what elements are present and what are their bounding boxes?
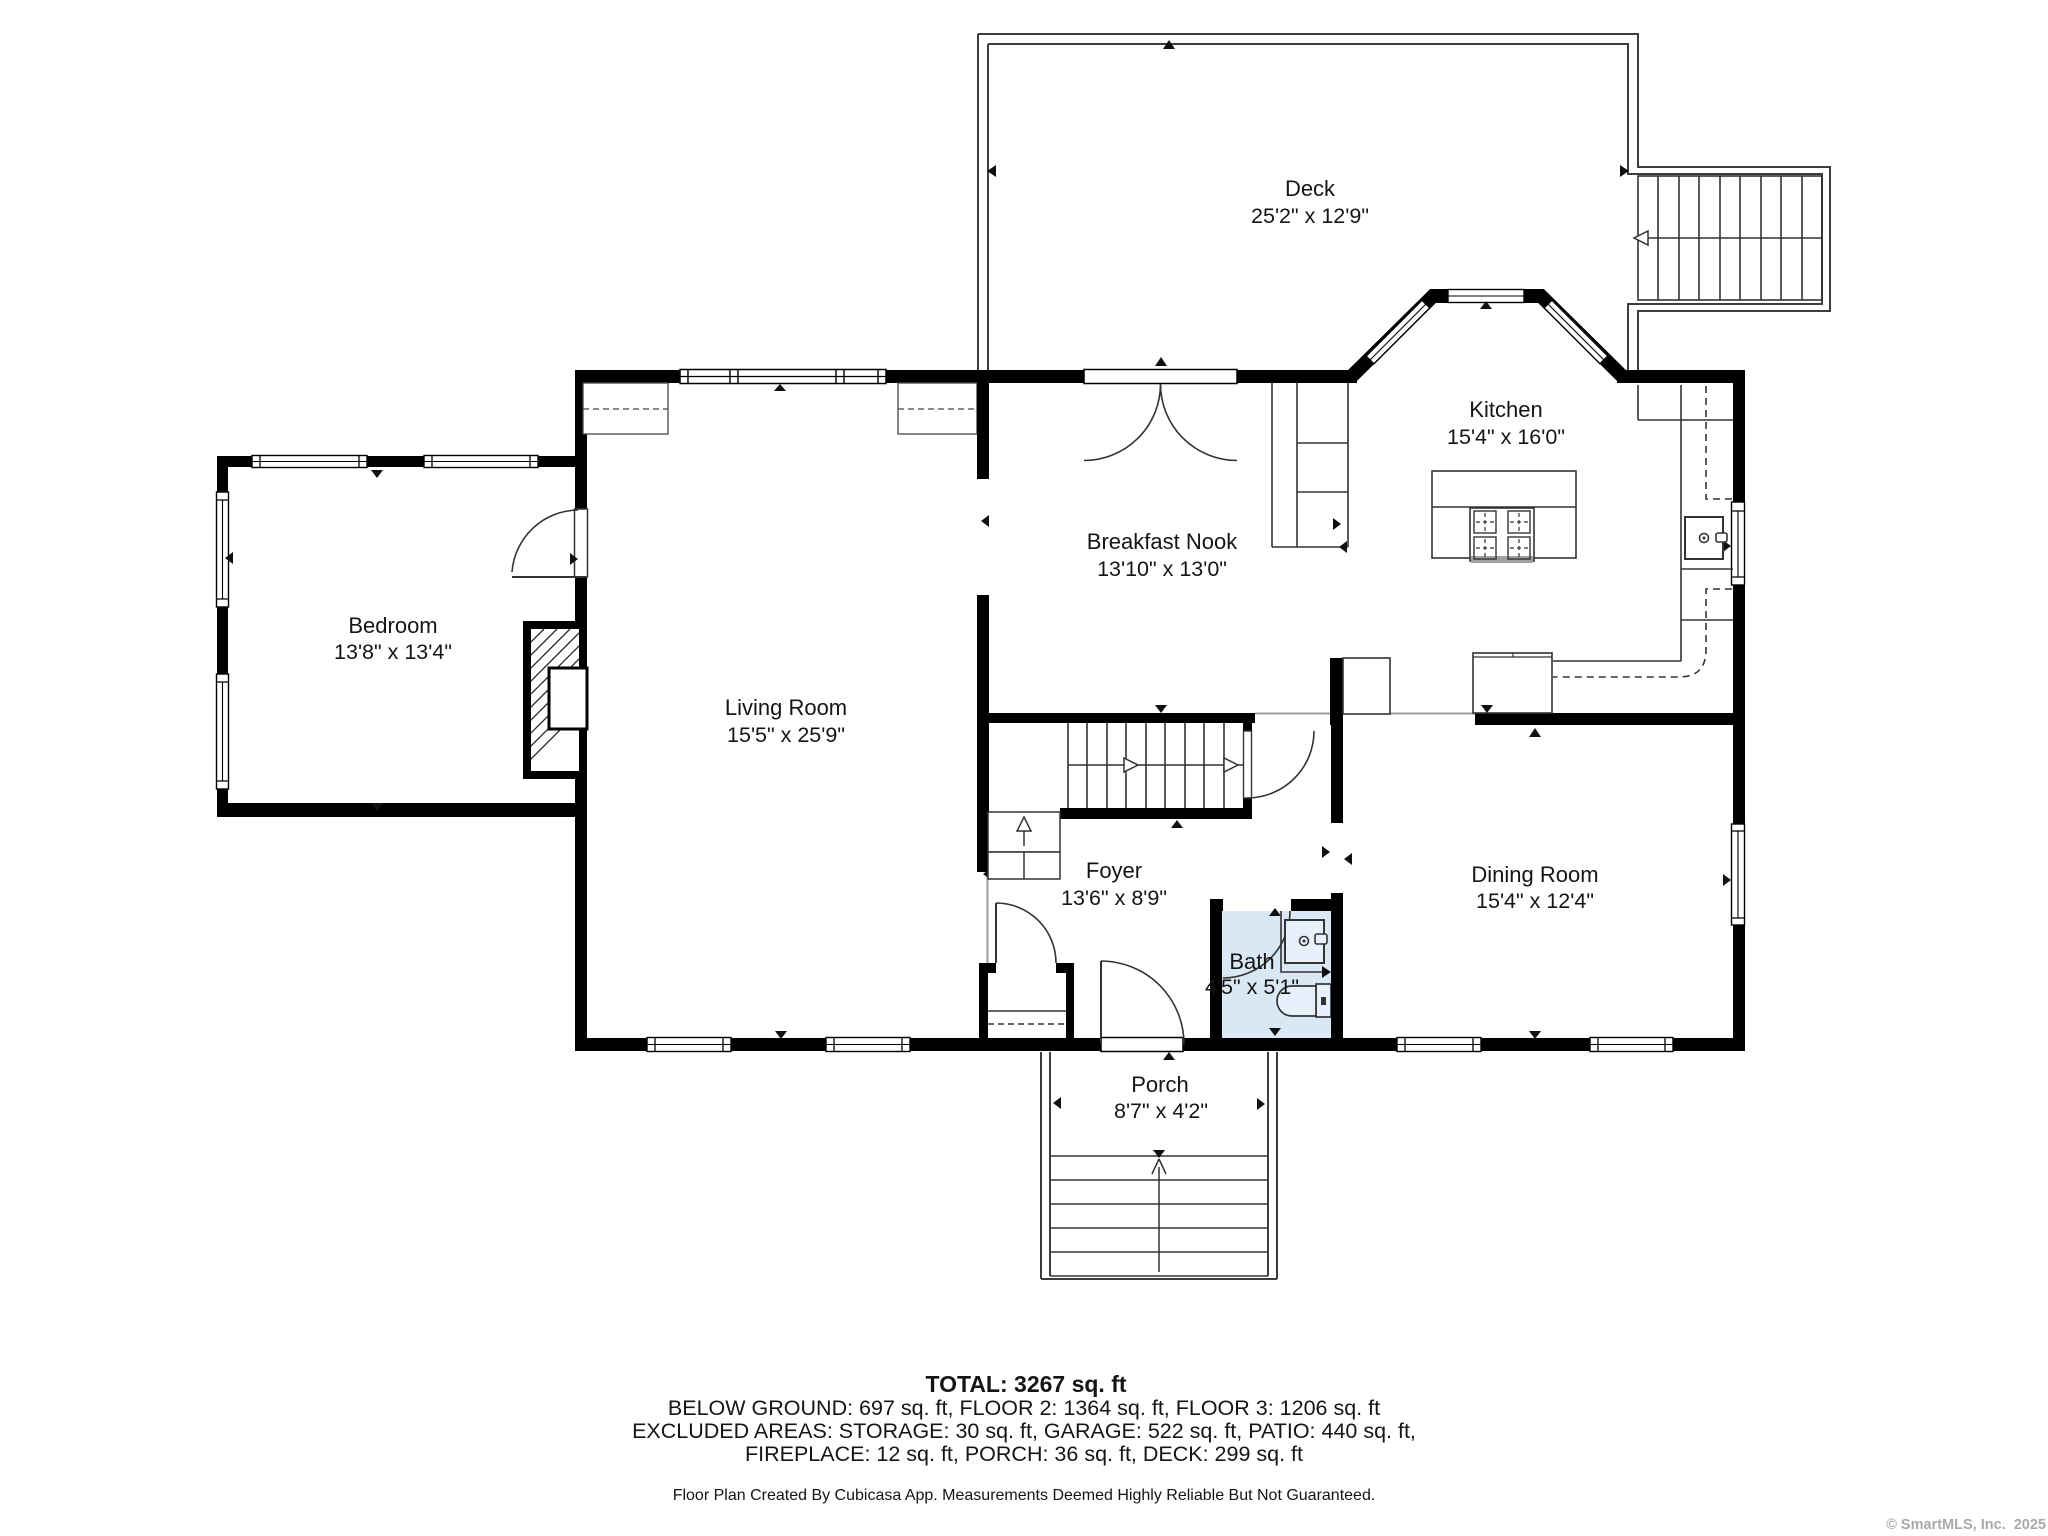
svg-text:Bedroom: Bedroom: [348, 613, 437, 638]
svg-text:Deck: Deck: [1285, 176, 1336, 201]
svg-text:25'2" x 12'9": 25'2" x 12'9": [1251, 204, 1369, 228]
svg-text:4'5" x 5'1": 4'5" x 5'1": [1205, 975, 1299, 999]
svg-text:Breakfast Nook: Breakfast Nook: [1087, 529, 1238, 554]
svg-text:15'5" x 25'9": 15'5" x 25'9": [727, 723, 845, 747]
svg-text:Bath: Bath: [1229, 949, 1274, 974]
svg-text:TOTAL: 3267 sq. ft: TOTAL: 3267 sq. ft: [925, 1371, 1126, 1397]
svg-text:15'4" x 16'0": 15'4" x 16'0": [1447, 425, 1565, 449]
svg-text:EXCLUDED AREAS: STORAGE: 30 sq: EXCLUDED AREAS: STORAGE: 30 sq. ft, GARA…: [632, 1419, 1416, 1443]
svg-text:15'4" x 12'4": 15'4" x 12'4": [1476, 889, 1594, 913]
svg-text:8'7" x 4'2": 8'7" x 4'2": [1114, 1099, 1208, 1123]
svg-text:13'10" x 13'0": 13'10" x 13'0": [1097, 557, 1227, 581]
svg-text:BELOW GROUND: 697 sq. ft, FLOO: BELOW GROUND: 697 sq. ft, FLOOR 2: 1364 …: [668, 1396, 1380, 1420]
svg-text:Porch: Porch: [1131, 1072, 1188, 1097]
svg-text:Dining Room: Dining Room: [1471, 862, 1598, 887]
svg-text:Living Room: Living Room: [725, 695, 847, 720]
svg-text:FIREPLACE: 12 sq. ft, PORCH: 3: FIREPLACE: 12 sq. ft, PORCH: 36 sq. ft, …: [745, 1442, 1303, 1466]
svg-text:13'8" x 13'4": 13'8" x 13'4": [334, 640, 452, 664]
svg-text:Foyer: Foyer: [1086, 858, 1142, 883]
svg-text:© SmartMLS, Inc. 2025: © SmartMLS, Inc. 2025: [1886, 1517, 2046, 1533]
svg-text:Kitchen: Kitchen: [1469, 397, 1542, 422]
svg-text:Floor Plan Created By Cubicasa: Floor Plan Created By Cubicasa App. Meas…: [673, 1487, 1376, 1504]
svg-text:13'6" x 8'9": 13'6" x 8'9": [1061, 886, 1167, 910]
